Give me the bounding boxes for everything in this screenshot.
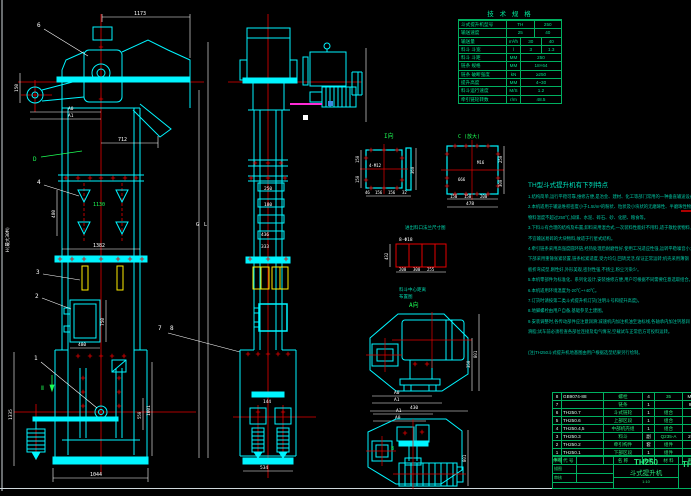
- bom-cell-qty: 1: [642, 425, 654, 432]
- spec-cell-value: 3: [520, 46, 541, 53]
- spec-cell-value: 30: [520, 38, 541, 45]
- bom-cell-material: 组合: [654, 409, 682, 416]
- dim-a801: 801: [473, 350, 478, 358]
- bom-cell-weight: [682, 409, 691, 416]
- spec-cell-value: 1.2: [520, 87, 561, 94]
- signature-row: 制图: [553, 456, 613, 465]
- dim-480-door: 480: [78, 342, 86, 348]
- dim-c250: 250: [498, 155, 503, 163]
- view-b: A1 A0 B 801: [366, 408, 468, 489]
- spec-cell-label: 输送速度: [459, 29, 506, 36]
- bom-cell-qty: 1: [642, 409, 654, 416]
- signature-value: [577, 465, 613, 473]
- spec-cell-unit: r/m: [506, 96, 520, 103]
- spec-cell-value: 4~30: [520, 79, 561, 86]
- dim-a1-front: A1: [68, 113, 74, 119]
- note-line: 滑脂;试车前必须检查各部位连接及电气情况,空载试车正常后方可投料运转。: [528, 327, 691, 337]
- bom-row: 3 TH250.3 料斗 副 Q235-A 203: [553, 433, 691, 441]
- bom-row: 4 TH250.4,5 中部机壳组 1 组合: [553, 425, 691, 433]
- bom-cell-weight: M20: [682, 393, 691, 400]
- dim-bA0: A0: [395, 415, 401, 421]
- direction-ii-label: Ⅱ: [41, 385, 44, 392]
- note-line: 2.本机适用于输送堆积密度小于1.5t/m³的粉状、粒状及小块状的无磨琢性、半磨…: [528, 202, 691, 212]
- spec-cell-label: 提升高度: [459, 79, 506, 86]
- bom-row: 2 TH250.2 牵引构件 套 组件: [553, 441, 691, 449]
- spec-row: 提升高度 MM 4~30: [459, 78, 561, 86]
- bom-cell-material: Q235-A: [654, 433, 682, 440]
- note-line: 7.订货时请按第二类斗式提升机订货(注明斗号和提升高度)。: [528, 296, 691, 306]
- dim-i360: 360: [410, 166, 415, 174]
- signature-table: 制图 描图 审核: [553, 456, 614, 488]
- dim-letter-l: L: [204, 222, 207, 228]
- notes-title: TH型斗式提升机有下列特点: [528, 179, 691, 189]
- dim-1044: 1044: [90, 472, 102, 478]
- dim-750: 750: [100, 318, 106, 326]
- spec-row: 链条 规格 MM 18×64: [459, 61, 561, 69]
- dim-s534: 534: [260, 465, 268, 471]
- dim-c478: 478: [466, 201, 474, 207]
- dim-c150a: 150: [450, 194, 458, 199]
- dim-bA1: A1: [396, 408, 402, 414]
- view-c-label: C (放大): [458, 133, 480, 140]
- bom-cell-weight: 203: [682, 433, 691, 440]
- note-line: 8.地脚螺栓由用户自备,基础参见土建图。: [528, 306, 691, 316]
- balloon-3: 3: [36, 269, 40, 276]
- bom-cell-name: 斗式链轮: [603, 409, 642, 416]
- bom-cell-no: 2: [553, 441, 561, 448]
- balloon-2: 2: [35, 293, 39, 300]
- spec-cell-value2: 40: [534, 29, 562, 36]
- dim-c666: 666: [458, 177, 466, 182]
- spec-table-title: 技 术 规 格: [458, 8, 562, 19]
- balloon-6: 6: [37, 22, 41, 29]
- spec-cell-unit: MM: [506, 79, 520, 86]
- bom-row: 5 TH250.6 上部区段 1 组合: [553, 417, 691, 425]
- bom-cell-code: TH250.3: [561, 433, 603, 440]
- bom-cell-name: 螺栓: [603, 393, 642, 400]
- dim-s333: 333: [261, 244, 269, 250]
- dim-s144: 144: [263, 399, 271, 405]
- grid-caption-1: 料斗中心距离: [399, 286, 426, 293]
- spec-cell-unit: kN: [506, 71, 520, 78]
- dim-i150a: 150: [355, 155, 360, 163]
- bom-cell-code: GB9074-88: [561, 393, 603, 400]
- note-line: 不宜输送易碎的大块物料,故适于行星式结构。: [528, 234, 691, 244]
- bom-cell-material: 35: [654, 393, 682, 400]
- bom-cell-code: TH250.4,5: [561, 425, 603, 432]
- dim-b801: 801: [462, 454, 467, 462]
- bom-row: 8 GB9074-88 螺栓 4 35 M20: [553, 393, 691, 401]
- spec-cell-value2: 40: [541, 38, 562, 45]
- side-view-centerlines: [228, 14, 362, 478]
- spec-cell-label: 牵引链轮转数: [459, 96, 506, 103]
- spec-cell-unit: MM: [506, 54, 520, 61]
- dim-c-bolt: M16: [477, 160, 485, 165]
- note-line: 5.本机零部件为标准化、系列化设计,安装维修方便,用户可根据不同需要任意选取组合…: [528, 275, 691, 285]
- dim-a0-front: A0: [68, 106, 74, 112]
- signature-value: [577, 474, 613, 482]
- bom-cell-weight: 9.0: [682, 401, 691, 408]
- dim-1001: 1001: [146, 405, 152, 416]
- drawing-number-box: TH2: [679, 456, 691, 488]
- bom-cell-material: 组合: [654, 425, 682, 432]
- spec-row: 牵引链轮转数 r/m 48.5: [459, 95, 561, 103]
- dim-g200: 200: [399, 267, 407, 272]
- side-view-cad-grips: [290, 101, 333, 120]
- cad-canvas[interactable]: 1173 712 A0 A1 150 480 1130 1382 750 480…: [0, 0, 691, 491]
- view-i-label: I向: [384, 132, 394, 140]
- dim-g432: 432: [384, 252, 389, 260]
- spec-row: 链条 破断强度 kN ≥250: [459, 70, 561, 78]
- dim-s436: 436: [261, 232, 269, 238]
- dim-c200: 200: [480, 194, 488, 199]
- note-line: (注)TH250斗式提升机地基图由用户根据选型结果另行绘制。: [528, 348, 691, 358]
- spec-cell-value: 18×64: [520, 62, 561, 69]
- drawing-name-box: TH250 斗式提升机 1:10: [614, 456, 679, 488]
- front-view-structure: [27, 27, 190, 464]
- spec-row: 输送速度 25 40: [459, 28, 561, 36]
- dim-550: 550: [137, 411, 142, 419]
- bom-cell-code: [561, 401, 603, 408]
- bolt-grid-detail: 8-Φ18 432 200 300 255 料斗中心距离 布置图: [384, 237, 446, 300]
- spec-cell-unit: M/S: [506, 87, 520, 94]
- dim-s180: 180: [264, 202, 272, 208]
- bom-cell-name: 料斗: [603, 433, 642, 440]
- balloon-1: 1: [34, 355, 38, 362]
- spec-cell-value2: 250: [534, 21, 562, 28]
- spec-cell-unit: MM: [506, 62, 520, 69]
- spec-cell-label: 链条 破断强度: [459, 71, 506, 78]
- title-block: 制图 描图 审核 TH250 斗式提升机 1:10 TH2: [552, 455, 691, 489]
- view-b-label: B: [391, 446, 394, 452]
- note-line: 4.牵引链条采用高强度圆环链,经热处理后耐磨性好,使用工况适应性强,运转平稳噪音…: [528, 244, 691, 254]
- bom-cell-material: [654, 401, 682, 408]
- bom-cell-name: 上部区段: [603, 417, 642, 424]
- spec-table-body: 斗式提升机型号 TH 250 输送速度 25 40 输送量 m³/h 30 40…: [458, 19, 562, 104]
- bolt-grid-label: 8-Φ18: [399, 237, 413, 243]
- front-view-centerlines: [14, 14, 204, 474]
- spec-cell-unit: m³/h: [506, 38, 520, 45]
- dim-i156a: 156: [375, 190, 383, 195]
- note-line: 下部采用重锤张紧装置,链条松紧适度,受力均匀,回转灵活,保证正常运转;机壳采用薄…: [528, 254, 691, 264]
- dim-aA0: A0: [394, 390, 400, 396]
- dim-c150b: 150: [464, 194, 472, 199]
- dim-g255: 255: [427, 267, 435, 272]
- detail-i: I向 4-M12 150 150 360 46 156 156 32: [355, 132, 416, 196]
- bom-cell-weight: [682, 425, 691, 432]
- bom-cell-material: 组合: [654, 417, 682, 424]
- spec-row: 料斗运行速度 M/S 1.2: [459, 86, 561, 94]
- spec-row: 输送量 m³/h 30 40: [459, 37, 561, 45]
- bom-cell-qty: 套: [642, 441, 654, 448]
- bom-cell-weight: [682, 441, 691, 448]
- side-view-structure: [240, 28, 362, 464]
- spec-cell-value: 250: [520, 54, 561, 61]
- dim-150: 150: [14, 84, 20, 92]
- bom-cell-name: 链条: [603, 401, 642, 408]
- signature-value: [577, 456, 613, 464]
- signature-label: 审核: [553, 474, 577, 482]
- bom-cell-no: 7: [553, 401, 561, 408]
- notes-lines: 1.结构简单,运行平稳可靠,维修方便,是冶金、建材、化工等部门常用的一种垂直输送…: [528, 192, 691, 358]
- flange-caption: 进出料口法兰尺寸图: [405, 224, 446, 231]
- drawing-model: TH250: [614, 456, 678, 467]
- bom-cell-no: 3: [553, 433, 561, 440]
- bom-cell-no: 6: [553, 409, 561, 416]
- dim-a430: 430: [410, 405, 418, 411]
- drawing-name: 斗式提升机: [614, 467, 678, 477]
- dim-1382: 1382: [93, 243, 105, 249]
- note-line: 9.安装调整时,各传动部件应注意润滑:减速机内加注机油至油标线,各轴承内加注钙基…: [528, 317, 691, 327]
- spec-cell-value: 48.5: [520, 96, 561, 103]
- drawing-scale: 1:10: [614, 477, 678, 485]
- view-a-label: A向: [409, 301, 419, 309]
- bom-cell-qty: 4: [642, 393, 654, 400]
- balloon-8: 8: [170, 325, 174, 332]
- spec-cell-label: 料斗 斗距: [459, 54, 506, 61]
- note-line: 1.结构简单,运行平稳可靠,维修方便,是冶金、建材、化工等部门常用的一种垂直输送…: [528, 192, 691, 202]
- balloon-4: 4: [37, 179, 41, 186]
- dim-480: 480: [51, 210, 57, 218]
- spec-row: 料斗 斗距 MM 250: [459, 53, 561, 61]
- bom-cell-code: TH250.7: [561, 409, 603, 416]
- bom-cell-qty: 1: [642, 417, 654, 424]
- dim-i32: 32: [402, 190, 407, 195]
- spec-row: 料斗 斗宽 l 3 1.3: [459, 45, 561, 53]
- signature-row: 描图: [553, 465, 613, 474]
- direction-d-label: D: [33, 156, 37, 163]
- dim-1173: 1173: [134, 11, 146, 17]
- note-line: 物料温度不超过250℃,如煤、水泥、碎石、砂、化肥、粮食等。: [528, 213, 691, 223]
- spec-cell-label: 斗式提升机型号: [459, 21, 506, 28]
- height-note: H(最大30M): [4, 227, 11, 252]
- dim-c300: 300: [498, 179, 503, 187]
- bom-cell-no: 8: [553, 393, 561, 400]
- bom-row: 6 TH250.7 斗式链轮 1 组合: [553, 409, 691, 417]
- spec-table: 技 术 规 格 斗式提升机型号 TH 250 输送速度 25 40 输送量 m³…: [458, 8, 562, 104]
- spec-cell-label: 输送量: [459, 38, 506, 45]
- balloon-7: 7: [158, 325, 162, 332]
- spec-cell-value: TH: [506, 21, 534, 28]
- spec-row: 斗式提升机型号 TH 250: [459, 20, 561, 28]
- spec-cell-label: 链条 规格: [459, 62, 506, 69]
- bom-cell-material: 组件: [654, 441, 682, 448]
- signature-label: 制图: [553, 456, 577, 464]
- bom-row: 7 链条 1 9.0: [553, 401, 691, 409]
- grid-caption-2: 布置图: [399, 293, 413, 300]
- bom-cell-no: 4: [553, 425, 561, 432]
- bom-cell-qty: 副: [642, 433, 654, 440]
- signature-row: 审核: [553, 474, 613, 483]
- bom-cell-weight: [682, 417, 691, 424]
- dim-712: 712: [118, 137, 127, 143]
- bom-cell-qty: 1: [642, 401, 654, 408]
- spec-cell-label: 料斗 斗宽: [459, 46, 506, 53]
- detail-c: C (放大) M16 666 250 300 150 150 200 478: [441, 133, 504, 207]
- dim-i156b: 156: [388, 190, 396, 195]
- front-view-buckets-yellow: [82, 266, 123, 290]
- dim-letter-g: G: [196, 222, 199, 228]
- bom-cell-no: 5: [553, 417, 561, 424]
- note-line: 板折弯成型,刚性好,外形美观,密封性强,不扬尘,粉尘污染少。: [528, 265, 691, 275]
- view-a: A向 A0 A1 430 350 801: [366, 301, 479, 411]
- spec-cell-label: 料斗运行速度: [459, 87, 506, 94]
- dim-1335: 1335: [8, 409, 14, 420]
- dim-1130: 1130: [93, 202, 105, 208]
- dim-i46: 46: [365, 190, 370, 195]
- bom-rows: 8 GB9074-88 螺栓 4 35 M20 7 链条 1 9.0 6 TH2…: [553, 393, 691, 457]
- signature-label: 描图: [553, 465, 577, 473]
- bom-cell-name: 中部机壳组: [603, 425, 642, 432]
- note-line: [528, 337, 691, 347]
- bom-cell-code: TH250.2: [561, 441, 603, 448]
- note-line: 3.下料斗有合理的结构及布置,卸料采用混合式,一次装料性能好不甩料,适于散粒状物…: [528, 223, 691, 233]
- note-line: 6.本机适用环境温度为-20℃~+40℃。: [528, 286, 691, 296]
- dim-g300: 300: [413, 267, 421, 272]
- dim-s250: 250: [264, 186, 272, 192]
- bom-cell-name: 牵引构件: [603, 441, 642, 448]
- side-view-buckets-yellow: [253, 267, 288, 289]
- dim-i-bolt: 4-M12: [369, 163, 382, 168]
- spec-cell-value: 25: [506, 29, 534, 36]
- spec-cell-value: ≥250: [520, 71, 561, 78]
- dim-i150b: 150: [355, 175, 360, 183]
- dim-a350: 350: [466, 360, 471, 368]
- spec-cell-unit: l: [506, 46, 520, 53]
- dim-aA1: A1: [394, 397, 400, 403]
- spec-cell-value2: 1.3: [541, 46, 562, 53]
- bom-cell-code: TH250.6: [561, 417, 603, 424]
- notes-block: TH型斗式提升机有下列特点 1.结构简单,运行平稳可靠,维修方便,是冶金、建材、…: [528, 179, 691, 358]
